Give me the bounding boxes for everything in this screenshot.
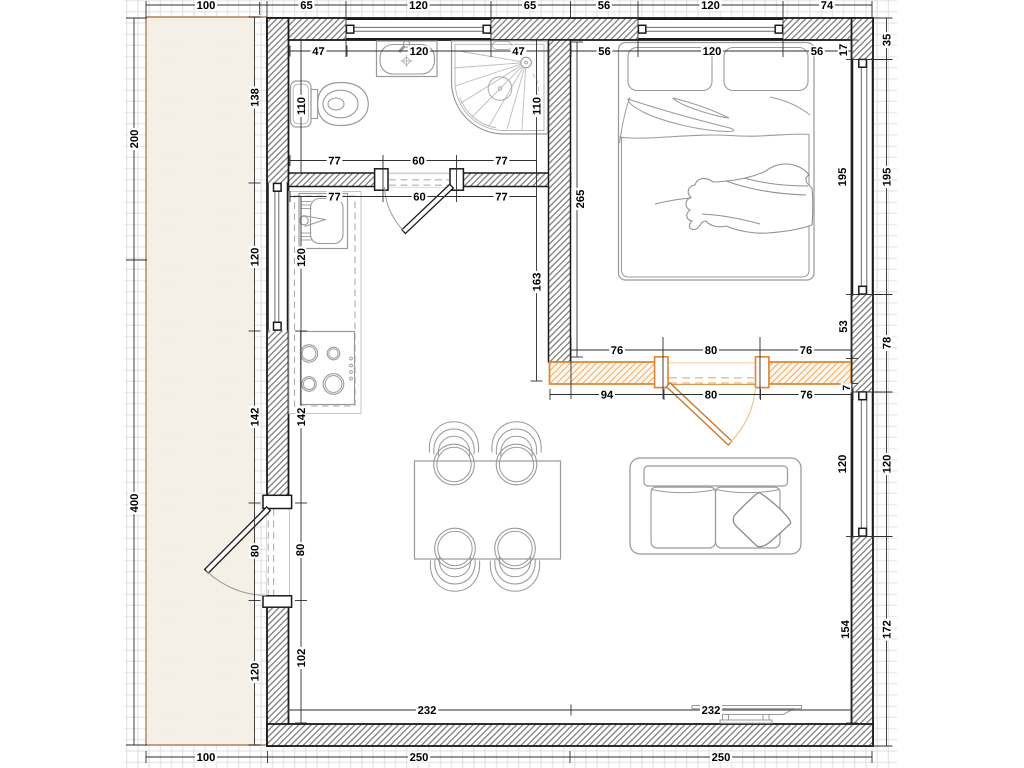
svg-text:35: 35	[881, 34, 893, 46]
svg-text:120: 120	[410, 46, 429, 58]
svg-text:102: 102	[296, 649, 308, 668]
svg-text:232: 232	[418, 705, 437, 717]
svg-text:120: 120	[249, 663, 261, 682]
svg-text:110: 110	[531, 97, 543, 115]
svg-text:120: 120	[701, 0, 720, 12]
svg-text:80: 80	[249, 545, 261, 557]
svg-text:232: 232	[702, 705, 721, 717]
svg-text:172: 172	[881, 620, 893, 639]
svg-text:77: 77	[328, 155, 340, 167]
svg-text:195: 195	[881, 168, 893, 187]
svg-text:80: 80	[705, 345, 717, 357]
svg-text:110: 110	[296, 97, 308, 115]
svg-text:142: 142	[296, 408, 308, 427]
svg-text:53: 53	[838, 320, 850, 332]
svg-text:80: 80	[295, 544, 307, 556]
svg-text:76: 76	[800, 389, 812, 401]
svg-text:47: 47	[512, 46, 524, 58]
svg-text:120: 120	[296, 248, 308, 267]
svg-text:60: 60	[412, 155, 424, 167]
svg-text:56: 56	[598, 0, 610, 12]
svg-text:80: 80	[705, 389, 717, 401]
svg-text:100: 100	[197, 752, 216, 764]
svg-text:56: 56	[598, 46, 610, 58]
svg-text:120: 120	[881, 455, 893, 474]
svg-text:120: 120	[249, 248, 261, 267]
svg-text:120: 120	[703, 46, 722, 58]
svg-text:60: 60	[413, 191, 425, 203]
svg-text:142: 142	[249, 408, 261, 427]
svg-text:7: 7	[841, 385, 853, 391]
svg-text:56: 56	[811, 46, 823, 58]
svg-text:65: 65	[524, 0, 536, 12]
svg-text:250: 250	[410, 752, 429, 764]
svg-text:400: 400	[129, 494, 141, 513]
svg-text:77: 77	[495, 191, 507, 203]
svg-text:77: 77	[328, 191, 340, 203]
svg-text:195: 195	[837, 168, 849, 187]
svg-text:94: 94	[601, 389, 614, 401]
svg-text:17: 17	[838, 44, 850, 56]
svg-text:76: 76	[800, 345, 812, 357]
svg-text:77: 77	[495, 155, 507, 167]
svg-text:120: 120	[837, 455, 849, 474]
svg-text:200: 200	[129, 130, 141, 149]
svg-text:250: 250	[712, 752, 731, 764]
svg-text:120: 120	[409, 0, 428, 12]
svg-text:154: 154	[840, 619, 852, 638]
svg-text:74: 74	[821, 0, 834, 12]
svg-text:78: 78	[881, 337, 893, 349]
svg-text:47: 47	[312, 46, 324, 58]
svg-text:138: 138	[249, 88, 261, 107]
svg-text:65: 65	[300, 0, 312, 12]
svg-text:100: 100	[197, 0, 216, 12]
svg-text:76: 76	[611, 345, 623, 357]
svg-text:265: 265	[575, 190, 587, 209]
svg-text:163: 163	[531, 273, 543, 292]
